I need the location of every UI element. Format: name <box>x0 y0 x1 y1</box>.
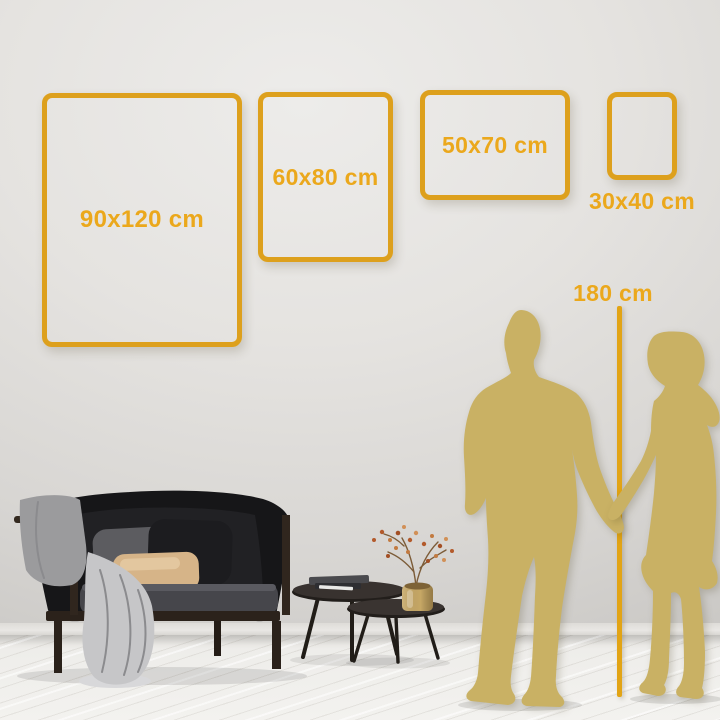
coffee-tables <box>292 525 454 662</box>
small-table-leg <box>396 617 398 662</box>
poster-size-comparison-scene: 90x120 cm 60x80 cm 50x70 cm 30x40 cm 180… <box>0 0 720 720</box>
sofa-front-rail <box>46 611 280 621</box>
sofa-leg <box>272 621 281 669</box>
woman-silhouette <box>608 331 720 699</box>
scene-artwork <box>0 0 720 720</box>
sofa-leg <box>54 621 62 673</box>
sofa <box>14 491 290 688</box>
brass-vase <box>402 583 433 612</box>
throw-blanket-arm <box>20 495 87 586</box>
small-table-leg <box>425 614 438 658</box>
sofa-arm-post <box>282 515 290 615</box>
tan-pillow-highlight <box>120 557 180 571</box>
man-silhouette <box>464 310 624 707</box>
dried-flowers <box>372 525 454 586</box>
books <box>309 575 369 590</box>
couple-silhouettes <box>464 310 720 707</box>
large-table-leg <box>303 598 318 657</box>
